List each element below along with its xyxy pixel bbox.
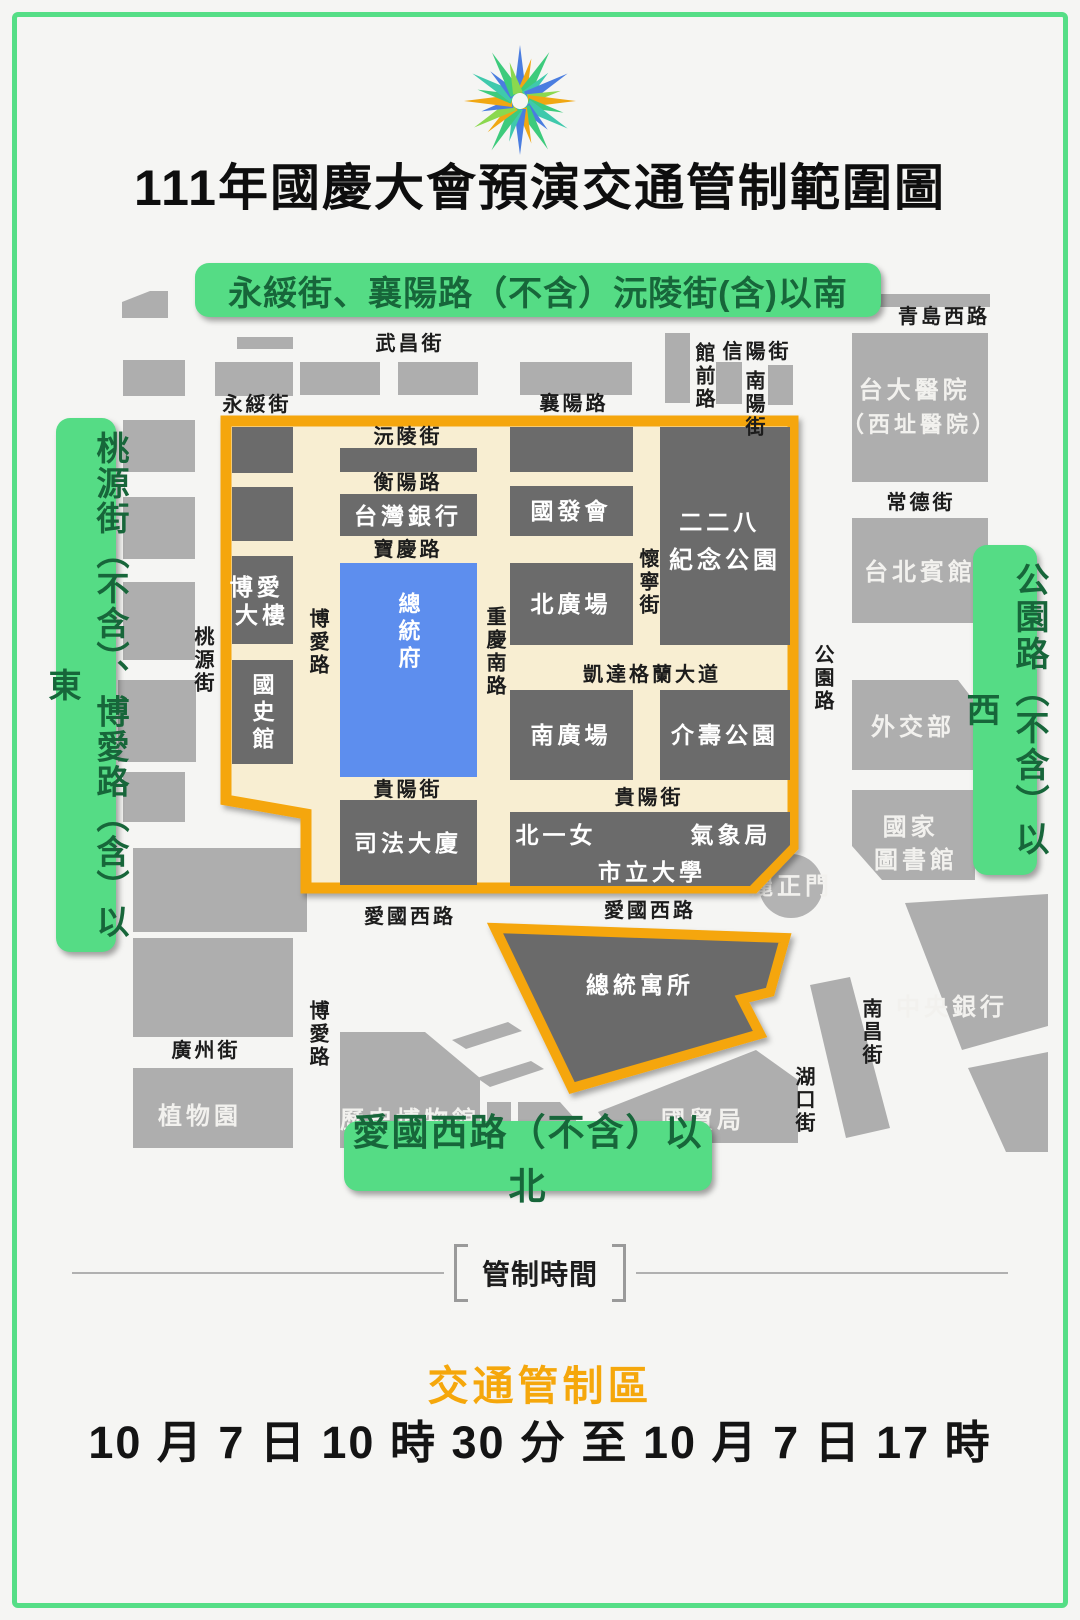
west-boundary-banner: 桃源街（不含）、博愛路（含）以東 <box>56 418 116 952</box>
taoyuan-street-label: 桃源街 <box>191 626 215 695</box>
ntu-hospital-line1: 台大醫院 <box>859 376 971 404</box>
boai-building-line1: 博愛 <box>230 574 284 600</box>
city-block <box>452 1022 522 1049</box>
judicial-building-label: 司法大廈 <box>354 830 462 856</box>
aiguo-west-road-left-label: 愛國西路 <box>364 904 456 928</box>
city-block <box>215 362 293 396</box>
ntu-hospital-block <box>852 333 988 482</box>
city-block <box>237 337 293 349</box>
yuanling-street-label: 沅陵街 <box>374 424 443 448</box>
right-bracket-icon <box>612 1244 626 1302</box>
boai-building-block <box>232 556 293 644</box>
jieshou-park-label: 介壽公園 <box>670 722 779 748</box>
boai-road-south-label: 博愛路 <box>306 999 329 1069</box>
ndc-label: 國發會 <box>531 498 612 524</box>
huaining-street-label: 懷寧街 <box>636 547 660 617</box>
qingdao-west-road-label: 青島西路 <box>898 304 990 328</box>
central-bank-label: 中央銀行 <box>896 993 1008 1021</box>
control-time-range: 10 月 7 日 10 時 30 分 至 10 月 7 日 17 時 <box>0 1406 1080 1471</box>
zone-block <box>232 487 293 541</box>
presidential-residence-label: 總統寓所 <box>586 972 694 998</box>
guiyang-street-west-label: 貴陽街 <box>374 777 443 801</box>
city-block <box>477 1061 544 1087</box>
traffic-control-poster: { "title": "111年國慶大會預演交通管制範圍圖", "banners… <box>0 0 1080 1620</box>
bank-of-taiwan-label: 台灣銀行 <box>354 503 462 529</box>
city-block <box>768 365 793 405</box>
left-bracket-icon <box>454 1244 468 1302</box>
control-time-heading: 管制時間 <box>478 1253 602 1293</box>
east-boundary-banner: 公園路（不含）以西 <box>973 545 1037 875</box>
baoqing-road-label: 寶慶路 <box>374 537 443 561</box>
city-block <box>122 291 168 318</box>
divider-line-left <box>72 1272 444 1274</box>
central-bank-block <box>905 894 1048 1050</box>
chongqing-south-road-label: 重慶南路 <box>483 606 506 698</box>
nanchang-street-label: 南昌街 <box>859 998 883 1067</box>
divider-line-right <box>636 1272 1008 1274</box>
park228-block <box>660 427 790 645</box>
changde-street-label: 常德街 <box>887 490 956 514</box>
city-block <box>520 362 632 395</box>
national-library-line1: 國家 <box>883 813 939 841</box>
city-block <box>665 333 690 403</box>
city-block <box>398 362 478 395</box>
xiangyang-road-label: 襄陽路 <box>539 391 609 415</box>
north-plaza-label: 北廣場 <box>531 591 612 617</box>
traffic-control-zone-label: 交通管制區 <box>0 1352 1080 1412</box>
academia-historica-label: 國史館 <box>250 673 275 754</box>
city-block <box>300 362 380 395</box>
boai-road-inner-label: 博愛路 <box>306 607 329 677</box>
ntu-hospital-line2: （西址醫院） <box>842 412 998 437</box>
city-block <box>968 1052 1048 1152</box>
hukou-street-label: 湖口街 <box>792 1066 816 1135</box>
first-girls-school-label: 北一女 <box>516 822 597 848</box>
zone-block <box>510 427 633 472</box>
park228-line2: 紀念公園 <box>669 546 781 574</box>
guiyang-street-east-label: 貴陽街 <box>615 785 684 809</box>
north-boundary-banner: 永綏街、襄陽路（不含）沅陵街(含)以南 <box>195 263 881 317</box>
south-boundary-banner: 愛國西路（不含）以北 <box>344 1121 712 1191</box>
botanical-garden-label: 植物園 <box>158 1102 242 1130</box>
guanqian-road-label: 館前路 <box>692 341 715 411</box>
south-plaza-label: 南廣場 <box>531 722 612 748</box>
control-time-divider: 管制時間 <box>72 1243 1008 1303</box>
city-block <box>133 848 307 932</box>
presidential-office-label: 總統府 <box>396 591 421 673</box>
zone-block <box>232 427 293 473</box>
hengyang-road-label: 衡陽路 <box>374 470 443 494</box>
city-block <box>123 360 185 396</box>
guangzhou-street-label: 廣州街 <box>172 1038 241 1062</box>
aiguo-west-road-right-label: 愛國西路 <box>604 898 696 922</box>
city-block <box>716 362 742 404</box>
nanyang-street-label: 南陽街 <box>742 370 766 439</box>
mofa-label: 外交部 <box>871 713 955 741</box>
yongsui-street-label: 永綏街 <box>222 392 292 416</box>
park228-line1: 二二八 <box>679 509 760 535</box>
city-university-label: 市立大學 <box>598 859 706 885</box>
national-library-line2: 圖書館 <box>874 846 958 874</box>
xinyang-street-label: 信陽街 <box>723 339 792 363</box>
gongyuan-road-label: 公園路 <box>811 644 834 713</box>
boai-building-line2: 大樓 <box>235 602 289 628</box>
ketagalan-blvd-label: 凱達格蘭大道 <box>583 662 721 686</box>
wuchang-street-label: 武昌街 <box>376 331 445 355</box>
city-block <box>133 938 293 1037</box>
zone-block <box>340 448 477 472</box>
weather-bureau-label: 氣象局 <box>691 822 772 848</box>
